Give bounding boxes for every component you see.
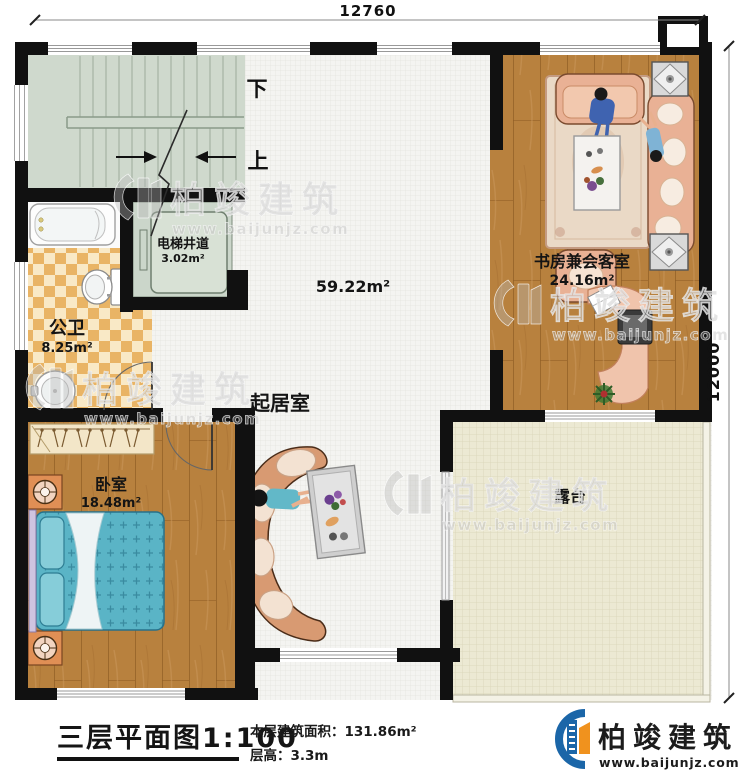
study-coffee-table — [574, 136, 620, 210]
brand-name: 柏竣建筑 — [598, 721, 738, 754]
floor-height-stat: 层高：3.3m — [250, 747, 328, 764]
pillow — [40, 517, 64, 569]
double-bed — [29, 510, 164, 632]
bathroom-area-label: 8.25m² — [41, 341, 92, 356]
side-table-lamp-top — [652, 62, 688, 96]
wall-elevator-stub — [227, 270, 248, 310]
stair-up-label: 上 — [248, 149, 269, 173]
pillow — [40, 573, 64, 626]
stair-down-label: 下 — [247, 77, 268, 101]
watermark-name: 柏竣建筑 — [440, 476, 616, 517]
wall-study-left-upper — [490, 55, 503, 150]
floor-plan-page: 下 上 电梯井道 3.02m² 公卫 8.25m² 59.22m² 起居室 书房… — [0, 0, 750, 776]
watermark-site: www.baijunjz.com — [442, 516, 619, 534]
wall-terrace-left-lower — [440, 600, 453, 700]
chimney — [658, 16, 708, 55]
elevator-name-label: 电梯井道 — [157, 236, 209, 252]
terrace-floor — [453, 422, 703, 695]
bedroom-area-label: 18.48m² — [81, 496, 141, 511]
study-chaise-right — [648, 92, 694, 254]
floor-height-label: 层高： — [250, 747, 291, 764]
living-coffee-table — [307, 465, 365, 558]
wall-terrace-left-upper — [440, 410, 453, 472]
dimension-top-label: 12760 — [339, 2, 396, 20]
headboard — [29, 510, 36, 632]
toilet-icon — [82, 269, 122, 305]
watermark-site: www.baijunjz.com — [552, 326, 729, 344]
floor-area-stat: 本层建筑面积：131.86m² — [250, 723, 417, 740]
watermark-name: 柏竣建筑 — [82, 370, 258, 411]
nightstand-top — [28, 475, 62, 509]
window-study-bottom — [545, 410, 655, 422]
bathroom-name-label: 公卫 — [49, 318, 85, 339]
title-underline — [57, 757, 239, 761]
bathtub-icon — [30, 204, 115, 245]
watermark-site: www.baijunjz.com — [172, 220, 349, 238]
watermark-site: www.baijunjz.com — [84, 410, 261, 428]
floor-height-value: 3.3m — [291, 748, 329, 764]
terrace-parapet-right — [703, 422, 710, 702]
watermark-name: 柏竣建筑 — [550, 286, 726, 327]
plan-title-text: 三层平面图 — [57, 723, 202, 754]
elevator-counterweight — [140, 230, 147, 270]
window-top-living-2 — [377, 42, 452, 55]
stairwell-floor — [28, 55, 245, 188]
watermark-name: 柏竣建筑 — [170, 180, 346, 221]
window-top-living-1 — [197, 42, 310, 55]
living-area-label: 59.22m² — [316, 277, 390, 296]
nightstand-bottom — [28, 631, 62, 665]
side-table-lamp-bottom — [650, 234, 688, 270]
bedroom-name-label: 卧室 — [95, 475, 127, 494]
floor-plan-canvas: 下 上 电梯井道 3.02m² 公卫 8.25m² 59.22m² 起居室 书房… — [0, 0, 750, 776]
dimension-right-label: 12000 — [704, 342, 723, 403]
study-name-label: 书房兼会客室 — [534, 252, 630, 271]
window-bedroom-bottom — [57, 688, 185, 700]
window-left-stairs — [11, 85, 28, 161]
window-top-study — [540, 42, 660, 55]
floor-area-label: 本层建筑面积： — [250, 723, 345, 740]
elevator-area-label: 3.02m² — [161, 252, 205, 265]
window-left-bathroom — [11, 262, 28, 350]
terrace-parapet-bottom — [453, 695, 710, 702]
plant-icon — [593, 383, 615, 405]
window-living-bottom — [280, 648, 397, 662]
wardrobe — [30, 424, 154, 454]
brand-website: www.baijunjz.com — [599, 755, 739, 770]
floor-area-value: 131.86m² — [345, 724, 417, 740]
wall-bedroom-right — [235, 408, 255, 700]
window-top-stairs — [48, 42, 132, 55]
